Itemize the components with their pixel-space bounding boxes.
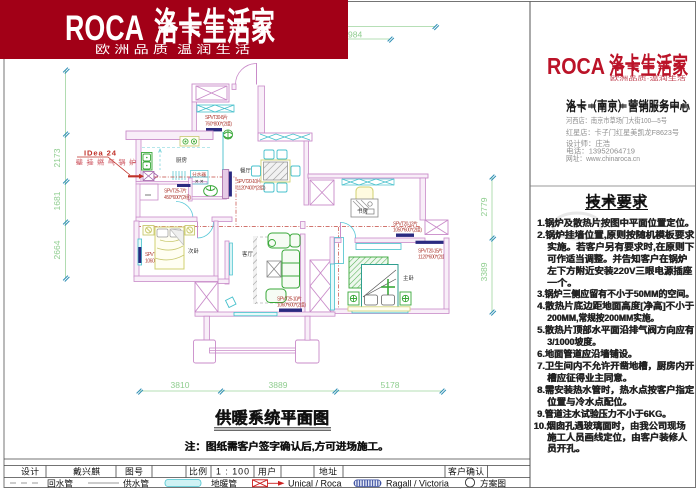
svg-text:Unical / Roca: Unical / Roca — [288, 479, 342, 489]
svg-text:1681: 1681 — [52, 191, 62, 210]
svg-text:IDea 24: IDea 24 — [84, 149, 117, 158]
svg-text:戴兴麒: 戴兴麒 — [73, 466, 100, 477]
svg-text:3889: 3889 — [269, 380, 288, 390]
svg-text:5178: 5178 — [381, 380, 400, 390]
svg-text:客厅: 客厅 — [242, 250, 253, 258]
svg-text:主卧: 主卧 — [403, 274, 414, 282]
svg-text:设计: 设计 — [21, 466, 39, 477]
svg-text:Ragall / Victoria: Ragall / Victoria — [386, 479, 449, 489]
svg-text:回水管: 回水管 — [47, 478, 73, 489]
svg-text:1060*600*(2组): 1060*600*(2组) — [277, 302, 306, 309]
svg-text:厨房: 厨房 — [176, 156, 187, 164]
svg-text:红星店：卡子门红星美凯龙F8623号: 红星店：卡子门红星美凯龙F8623号 — [566, 128, 679, 137]
svg-text:2173: 2173 — [52, 148, 62, 167]
svg-text:2779: 2779 — [479, 197, 489, 216]
svg-text:1050*600*(2组): 1050*600*(2组) — [393, 227, 422, 234]
svg-text:3810: 3810 — [171, 380, 190, 390]
svg-text:客户确认: 客户确认 — [448, 466, 484, 477]
svg-text:地址: 地址 — [319, 466, 337, 477]
svg-text:1120*400*(2组): 1120*400*(2组) — [237, 185, 266, 192]
svg-text:壁挂燃气锅炉: 壁挂燃气锅炉 — [76, 158, 136, 167]
svg-text:2664: 2664 — [52, 240, 62, 259]
svg-text:984: 984 — [348, 30, 362, 40]
svg-text:图号: 图号 — [125, 467, 143, 477]
svg-text:比例: 比例 — [189, 466, 207, 477]
svg-text:用户: 用户 — [258, 466, 276, 477]
svg-text:3389: 3389 — [479, 262, 489, 281]
svg-text:次卧: 次卧 — [188, 247, 199, 255]
svg-text:河西店：南京市草场门大街100—5号: 河西店：南京市草场门大街100—5号 — [566, 116, 667, 125]
svg-text:欧 洲 品 质: 欧 洲 品 质 — [95, 43, 168, 56]
svg-text:地暖管: 地暖管 — [211, 478, 237, 489]
svg-text:网址：www.chinaroca.cn: 网址：www.chinaroca.cn — [566, 154, 640, 163]
svg-text:欧洲品质·温润生活: 欧洲品质·温润生活 — [610, 75, 686, 83]
svg-text:450*600*(2组): 450*600*(2组) — [164, 194, 191, 201]
svg-text:温 润 生 活: 温 润 生 活 — [177, 42, 250, 56]
svg-text:ROCA: ROCA — [65, 9, 144, 48]
svg-text:760*800*(2组): 760*800*(2组) — [205, 121, 232, 128]
svg-text:SPVT20-12片: SPVT20-12片 — [393, 221, 418, 228]
svg-text:1 : 100: 1 : 100 — [216, 467, 249, 477]
svg-text:供水管: 供水管 — [123, 478, 149, 489]
svg-text:SPVT30-8片: SPVT30-8片 — [205, 114, 228, 121]
svg-text:SPVT25-10片: SPVT25-10片 — [277, 296, 302, 303]
svg-text:书房: 书房 — [357, 207, 368, 215]
svg-text:1120*600*(2组): 1120*600*(2组) — [418, 254, 447, 261]
svg-text:餐厅: 餐厅 — [240, 167, 251, 175]
svg-text:ROCA: ROCA — [547, 53, 605, 79]
svg-text:SPVT20-10片: SPVT20-10片 — [237, 178, 262, 185]
svg-text:SPVT25-7片: SPVT25-7片 — [164, 188, 187, 195]
svg-text:SPVT20-15片: SPVT20-15片 — [418, 248, 443, 255]
svg-text:方案图: 方案图 — [480, 478, 506, 489]
